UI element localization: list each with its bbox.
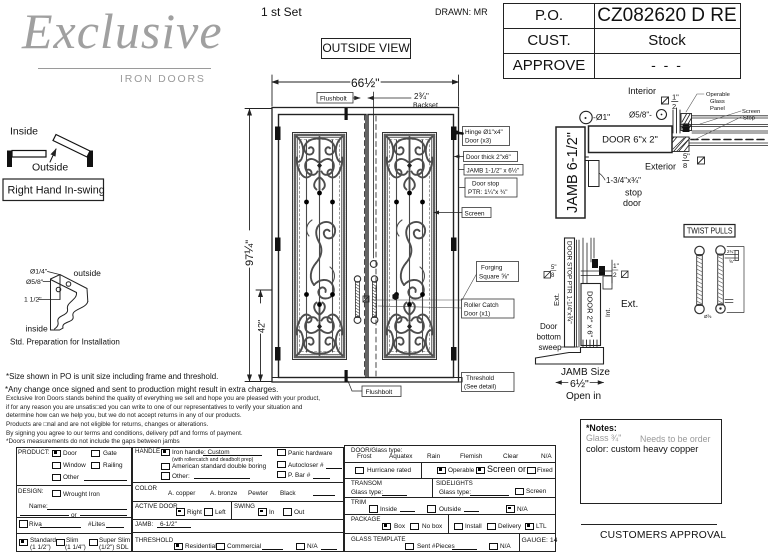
svg-text:inside: inside [26,324,48,334]
svg-text:Threshold: Threshold [466,375,494,382]
svg-text:Inside: Inside [10,126,38,138]
svg-text:Exterior: Exterior [645,162,676,172]
svg-text:Roller Catch: Roller Catch [464,302,499,309]
svg-text:Std. Preparation for Installat: Std. Preparation for Installation [10,338,120,347]
svg-text:Screen: Screen [742,109,760,115]
svg-text:Outside: Outside [32,162,68,174]
svg-text:Flushbolt: Flushbolt [366,389,393,396]
svg-text:bottom: bottom [537,333,562,342]
svg-text:stop: stop [625,188,642,198]
svg-text:TWIST PULLS: TWIST PULLS [687,226,733,236]
svg-text:Forging: Forging [481,265,503,272]
svg-text:Int.: Int. [605,308,612,317]
svg-text:1": 1" [613,263,620,270]
svg-text:97¼": 97¼" [242,240,256,266]
svg-text:5": 5" [551,265,556,271]
svg-text:Panel: Panel [710,106,725,112]
svg-text:Backset: Backset [413,103,438,110]
svg-text:Ext.: Ext. [621,299,638,310]
svg-text:Screen: Screen [465,211,485,218]
svg-text:JAMB Size: JAMB Size [561,367,610,378]
svg-text:2¾": 2¾" [727,249,735,254]
svg-text:JAMB 6-1/2": JAMB 6-1/2" [565,132,581,213]
svg-text:-Ø1": -Ø1" [593,112,610,122]
svg-text:Ø5/8": Ø5/8" [26,279,44,286]
svg-text:DOOR STOP PTR 1-1/4"x¾": DOOR STOP PTR 1-1/4"x¾" [566,241,573,324]
svg-text:JAMB 1-1/2" x 6½": JAMB 1-1/2" x 6½" [467,167,520,175]
svg-text:Flushbolt: Flushbolt [320,96,347,103]
svg-text:Right Hand In-swing: Right Hand In-swing [8,185,105,197]
svg-text:2¾": 2¾" [414,91,429,101]
svg-text:Ø5/8"-: Ø5/8"- [629,111,652,120]
svg-text:Ø1/4": Ø1/4" [30,269,48,276]
svg-text:Door (x1): Door (x1) [464,311,490,318]
svg-text:PTR: 1¼"x ¾": PTR: 1¼"x ¾" [468,189,507,196]
svg-text:6½": 6½" [570,378,589,390]
svg-text:DOOR 2" x 6": DOOR 2" x 6" [586,291,595,338]
svg-text:Ø⅝: Ø⅝ [704,314,712,319]
svg-text:2: 2 [672,102,676,111]
svg-text:door: door [623,198,641,208]
svg-text:Door (x3): Door (x3) [465,138,491,145]
svg-text:Door thick 2"x6": Door thick 2"x6" [466,154,511,161]
svg-text:(See detail): (See detail) [464,384,496,391]
svg-text:42": 42" [257,320,267,333]
svg-text:Open in: Open in [566,391,601,402]
svg-text:Stop: Stop [743,116,755,122]
svg-text:1 1/2": 1 1/2" [24,297,42,304]
svg-text:⅝": ⅝" [729,259,735,264]
svg-text:Ext.: Ext. [552,293,561,306]
svg-text:Square ⅝": Square ⅝" [479,274,509,281]
svg-text:66½": 66½" [351,75,379,90]
svg-text:1-3/4"x¾": 1-3/4"x¾" [606,175,641,185]
svg-text:Door stop: Door stop [472,181,500,188]
svg-text:Hinge Ø1"x4": Hinge Ø1"x4" [465,129,503,136]
svg-text:8: 8 [683,161,687,170]
svg-text:1": 1" [672,93,679,102]
svg-text:outside: outside [74,268,102,278]
svg-text:Operable: Operable [706,92,730,98]
svg-text:8: 8 [551,273,555,279]
svg-text:sweep: sweep [539,343,563,352]
svg-text:2: 2 [613,272,617,279]
svg-text:Interior: Interior [628,86,656,96]
svg-text:DOOR 6"x 2": DOOR 6"x 2" [602,135,658,146]
svg-text:Door: Door [540,322,558,331]
svg-text:Glass: Glass [710,99,725,105]
svg-text:5": 5" [683,152,690,161]
